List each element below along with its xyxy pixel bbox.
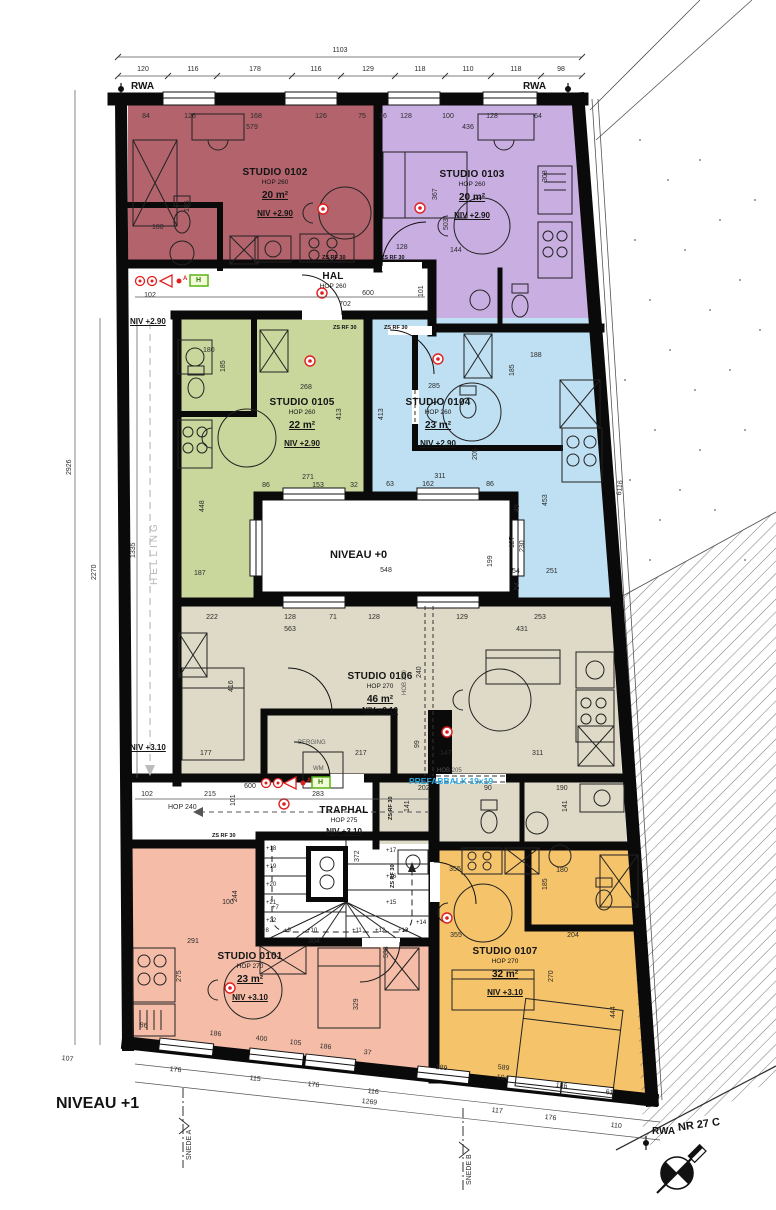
dim-label: 453 xyxy=(542,494,549,506)
traphal-niv: NIV +3.10 xyxy=(296,828,392,836)
room-name: STUDIO 0101 xyxy=(190,952,310,962)
zsrf-label: ZS RF 30 xyxy=(389,796,395,820)
dim-label: 283 xyxy=(312,791,324,798)
dim-label: 104 xyxy=(496,1074,508,1082)
dim-label: 176 xyxy=(544,1114,556,1122)
dim-label: 99 xyxy=(414,740,421,748)
room-tag-0103: STUDIO 0103 HOP 260 20 m² NIV +2.90 xyxy=(412,170,532,220)
room-hop: HOP 270 xyxy=(190,964,310,971)
room-tag-0105: STUDIO 0105 HOP 260 22 m² NIV +2.90 xyxy=(242,398,362,448)
dim-label: 116 xyxy=(367,1088,379,1096)
room-name: STUDIO 0105 xyxy=(242,398,362,408)
dim-label: 185 xyxy=(509,364,516,376)
dim-label: 548 xyxy=(380,567,392,574)
dim-label: 563 xyxy=(284,626,296,633)
dim-label: 168 xyxy=(250,113,262,120)
dim-label: 600 xyxy=(362,290,374,297)
dim-label: 199 xyxy=(487,555,494,567)
dim-label: 129 xyxy=(456,614,468,621)
stair-step: +7 xyxy=(272,905,279,911)
dim-label: 102 xyxy=(141,791,153,798)
dim-label: 202 xyxy=(418,785,430,792)
page-title: NIVEAU +1 xyxy=(56,1096,139,1112)
dim-label: 2926 xyxy=(66,459,73,475)
room-niv: NIV +2.90 xyxy=(215,210,335,218)
zsrf-label: ZS RF 30 xyxy=(322,256,346,262)
dim-label: 230 xyxy=(519,540,526,552)
room-niv: NIV +2.90 xyxy=(242,440,362,448)
stair-step: +9 xyxy=(284,928,291,934)
dim-label: 291 xyxy=(187,938,199,945)
stair-step: +20 xyxy=(266,882,276,888)
dim-label: 128 xyxy=(400,113,412,120)
dim-label: 16 xyxy=(379,113,387,120)
dim-label: 141 xyxy=(562,800,569,812)
section-a-label: SNEDE A xyxy=(186,1130,193,1160)
dim-label: 189 xyxy=(435,1064,447,1072)
dim-label: 275 xyxy=(176,970,183,982)
dim-label: 141 xyxy=(404,800,411,812)
gang-hop: HOP 240 xyxy=(168,804,197,811)
dim-label: 187 xyxy=(194,570,206,577)
stair-step: +13 xyxy=(398,928,408,934)
room-name: STUDIO 0102 xyxy=(215,168,335,178)
dim-label: 416 xyxy=(228,680,235,692)
dim-label: 702 xyxy=(339,301,351,308)
dim-label: 2270 xyxy=(91,564,98,580)
dim-label: 448 xyxy=(199,500,206,512)
stair-step: +14 xyxy=(416,920,426,926)
dim-label: 153 xyxy=(312,482,324,489)
dim-label: 271 xyxy=(302,474,314,481)
dim-label: 54 xyxy=(514,582,521,590)
plan-drawing xyxy=(0,0,776,1210)
room-name: STUDIO 0104 xyxy=(378,398,498,408)
dim-label: 37 xyxy=(363,1049,372,1057)
hob205-label: HOB 205 xyxy=(437,768,462,774)
dim-label: 533 xyxy=(383,946,390,958)
dim-label: 308 xyxy=(542,170,549,182)
dim-label: 186 xyxy=(319,1043,331,1051)
dim-label: 98 xyxy=(557,66,565,73)
dim-label: 285 xyxy=(428,383,440,390)
zsrf-label: ZS RF 30 xyxy=(381,256,405,262)
dim-label: 185 xyxy=(184,200,191,212)
traphal-name: TRAPHAL xyxy=(296,806,392,816)
dim-label: 215 xyxy=(204,791,216,798)
helling-label: HELLING xyxy=(150,521,160,585)
dim-label: 117 xyxy=(491,1107,503,1115)
dim-label: 105 xyxy=(289,1039,301,1047)
room-hop: HOP 260 xyxy=(378,410,498,417)
dim-label: 503 xyxy=(443,218,450,230)
dim-label: 372 xyxy=(354,850,361,862)
dim-label: 180 xyxy=(152,224,164,231)
dim-label: 118 xyxy=(414,66,425,73)
room-tag-0106: STUDIO 0106 HOP 270 46 m² NIV +3.10 xyxy=(325,672,435,715)
exit-sign-traphal: H xyxy=(318,779,323,786)
room-area: 20 m² xyxy=(412,193,532,203)
dim-label: 75 xyxy=(358,113,366,120)
dim-label: 180 xyxy=(203,347,215,354)
dim-label: 120 xyxy=(137,66,149,73)
dim-label: 178 xyxy=(249,66,261,73)
dim-label: 222 xyxy=(206,614,218,621)
dim-label: 186 xyxy=(209,1030,221,1038)
stair-step: +15 xyxy=(386,900,396,906)
room-area: 23 m² xyxy=(190,975,310,985)
rwa-label-bottom: RWA xyxy=(652,1127,675,1137)
room-hop: HOP 260 xyxy=(412,182,532,189)
room-niv: NIV +3.10 xyxy=(190,994,310,1002)
section-lines xyxy=(179,1088,469,1192)
hal-name: HAL xyxy=(288,272,378,282)
dim-label: 589 xyxy=(497,1064,509,1072)
wm-label: WM xyxy=(313,766,324,772)
dim-label: 367 xyxy=(432,188,439,200)
dim-label: 444 xyxy=(610,1006,617,1018)
dim-label: 431 xyxy=(516,626,528,633)
floorplan-niveau-1: NIVEAU +1 NR 27 C RWA RWA RWA SNEDE A SN… xyxy=(0,0,776,1210)
dim-label: 311 xyxy=(532,750,543,757)
dim-label: 61 xyxy=(605,1089,614,1097)
room-niv: NIV +3.10 xyxy=(440,989,570,997)
dim-label: 600 xyxy=(244,783,256,790)
dim-label: 186 xyxy=(555,1082,567,1090)
hal-tag: HAL HOP 260 xyxy=(288,272,378,291)
dim-label: 64 xyxy=(534,113,542,120)
room-niv: NIV +3.10 xyxy=(325,707,435,715)
room-area: 22 m² xyxy=(242,421,362,431)
rwa-label-top-left: RWA xyxy=(131,82,154,92)
dim-label: 304 xyxy=(308,938,320,945)
room-hop: HOP 260 xyxy=(215,180,335,187)
stair-step: +17 xyxy=(386,848,396,854)
dim-label: 84 xyxy=(142,113,150,120)
dim-label: 355 xyxy=(450,932,462,939)
dim-label: 329 xyxy=(353,998,360,1010)
dim-label: 116 xyxy=(187,66,198,73)
zsrf-label: ZS RF 30 xyxy=(333,326,357,332)
zsrf-label: ZS RF 30 xyxy=(212,834,236,840)
dim-label: 90 xyxy=(484,785,492,792)
dim-label: 54 xyxy=(512,568,520,575)
dim-label: 129 xyxy=(362,66,374,73)
dim-label: 127 xyxy=(509,536,516,548)
dim-label: 355 xyxy=(449,866,461,873)
void-niveau-0 xyxy=(258,496,514,596)
dim-label: 251 xyxy=(546,568,558,575)
room-tag-0104: STUDIO 0104 HOP 260 23 m² NIV +2.90 xyxy=(378,398,498,448)
dim-label: 100 xyxy=(442,113,454,120)
dim-label: 107 xyxy=(61,1055,73,1063)
stair-step: +8 xyxy=(262,928,269,934)
berging-label: BERGING xyxy=(298,740,326,746)
dim-label: 413 xyxy=(336,408,343,420)
dim-label: 1335 xyxy=(130,542,137,558)
dim-label: 400 xyxy=(255,1035,267,1043)
dim-label: 110 xyxy=(610,1122,622,1130)
dim-label: 244 xyxy=(232,890,239,902)
dim-label: 268 xyxy=(300,384,312,391)
dim-label: 118 xyxy=(510,66,521,73)
alarm-a-hal: A xyxy=(183,276,187,282)
stair-step: +22 xyxy=(266,918,276,924)
dim-label: 162 xyxy=(422,481,434,488)
traphal-hop: HOP 275 xyxy=(296,818,392,825)
dim-label: 86 xyxy=(486,481,494,488)
room-niv: NIV +2.90 xyxy=(412,212,532,220)
room-hop: HOP 260 xyxy=(242,410,362,417)
room-hop: HOP 270 xyxy=(325,684,435,691)
dim-label: 110 xyxy=(462,66,473,73)
dim-label: 413 xyxy=(378,408,385,420)
dim-label: 311 xyxy=(434,473,445,480)
dim-label: 204 xyxy=(567,932,579,939)
corridor-niv-290: NIV +2.90 xyxy=(130,318,166,326)
dim-label: 176 xyxy=(169,1066,181,1074)
dim-label: 86 xyxy=(139,1022,148,1030)
dim-label: 115 xyxy=(249,1075,261,1083)
dim-label: 253 xyxy=(534,614,546,621)
room-tag-0102: STUDIO 0102 HOP 260 20 m² NIV +2.90 xyxy=(215,168,335,218)
dim-label: 436 xyxy=(462,124,474,131)
zsrf-label: ZS RF 30 xyxy=(384,326,408,332)
site-stipple xyxy=(624,139,761,561)
stair-step: +16 xyxy=(386,874,396,880)
room-tag-0101: STUDIO 0101 HOP 270 23 m² NIV +3.10 xyxy=(190,952,310,1002)
dim-label: 63 xyxy=(386,481,394,488)
dim-label: 177 xyxy=(200,750,212,757)
dim-label: 101 xyxy=(230,794,237,806)
stair-step: +18 xyxy=(266,846,276,852)
dim-label: 147 xyxy=(440,750,452,757)
dim-label: 49 xyxy=(514,504,521,512)
dim-label: 128 xyxy=(284,614,296,621)
dim-label: 190 xyxy=(556,785,568,792)
stair-step: +11 xyxy=(352,928,362,934)
dim-label: 176 xyxy=(307,1081,319,1089)
dim-label: 185 xyxy=(220,360,227,372)
room-name: STUDIO 0103 xyxy=(412,170,532,180)
traphal-tag: TRAPHAL HOP 275 NIV +3.10 xyxy=(296,806,392,836)
dim-label: 128 xyxy=(368,614,380,621)
stair-step: +19 xyxy=(266,864,276,870)
rwa-label-top-right: RWA xyxy=(523,82,546,92)
dim-label: 144 xyxy=(450,247,462,254)
dim-label: 116 xyxy=(310,66,321,73)
dim-label: 180 xyxy=(556,867,568,874)
room-name: STUDIO 0107 xyxy=(440,947,570,957)
stair-step: +12 xyxy=(375,928,385,934)
exit-sign-hal: H xyxy=(196,277,201,284)
section-b-label: SNEDE B xyxy=(466,1154,473,1185)
dim-label: 205 xyxy=(472,448,479,460)
dim-label: 102 xyxy=(144,292,156,299)
stair-step: +10 xyxy=(307,928,317,934)
dim-label: 270 xyxy=(548,970,555,982)
alarm-a-traphal: A xyxy=(307,778,311,784)
dim-label: 188 xyxy=(530,352,542,359)
void-label: NIVEAU +0 xyxy=(330,550,387,561)
north-compass-icon xyxy=(657,1145,706,1193)
dim-label: 32 xyxy=(350,482,358,489)
room-niv: NIV +2.90 xyxy=(378,440,498,448)
dim-label: 217 xyxy=(355,750,367,757)
room-area: 20 m² xyxy=(215,191,335,201)
room-hop: HOP 270 xyxy=(440,959,570,966)
room-area: 46 m² xyxy=(325,695,435,705)
dim-label: 1103 xyxy=(332,47,347,54)
dim-label: 579 xyxy=(246,124,258,131)
dim-label: 126 xyxy=(184,113,196,120)
dim-label: 185 xyxy=(542,878,549,890)
room-area: 23 m² xyxy=(378,421,498,431)
dim-label: 128 xyxy=(486,113,498,120)
dim-label: 101 xyxy=(418,285,425,297)
dim-label: 240 xyxy=(416,666,423,678)
dim-label: 128 xyxy=(396,244,408,251)
corridor-niv-310: NIV +3.10 xyxy=(130,744,166,752)
dim-label: 86 xyxy=(262,482,270,489)
dim-label: 126 xyxy=(315,113,327,120)
dim-label: 71 xyxy=(329,614,337,621)
